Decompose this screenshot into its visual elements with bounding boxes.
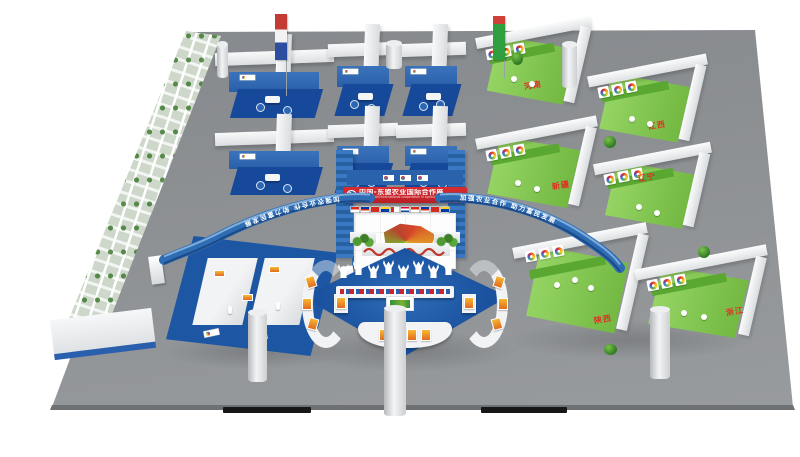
booth-logo-panel — [674, 273, 687, 286]
plant — [434, 232, 458, 248]
product-poster — [336, 297, 346, 309]
flag-icon — [361, 207, 369, 212]
rainbow-logo-icon — [627, 82, 636, 91]
rainbow-logo-icon — [540, 249, 549, 258]
booth-logo-panel — [552, 244, 565, 257]
booth-chair — [511, 76, 517, 82]
hall-pillar — [650, 309, 670, 379]
banner-subtitle: China-ASEAN international cooperation in… — [359, 196, 414, 199]
product-poster — [214, 270, 225, 277]
sponsor-sign — [400, 175, 411, 181]
booth-logo-panel — [524, 250, 537, 263]
flag-icon — [441, 207, 449, 212]
planter-box — [350, 232, 376, 243]
booth-canopy — [214, 49, 333, 66]
booth-logo-panel — [625, 80, 638, 93]
floor-mat — [481, 407, 567, 413]
plant — [350, 232, 374, 248]
hall-pillar — [217, 44, 228, 78]
booth-logo-panel — [660, 276, 673, 289]
product-poster — [242, 294, 253, 301]
booth-chair — [588, 285, 594, 291]
banner-text: 中国-东盟农业国际合作展 China-ASEAN international c… — [359, 189, 464, 202]
booth-sign — [343, 69, 358, 74]
product-poster — [269, 266, 280, 273]
rainbow-logo-icon — [619, 172, 628, 181]
rainbow-logo-icon — [662, 278, 671, 287]
rainbow-logo-icon — [613, 85, 622, 94]
expo-logo-icon — [346, 190, 357, 201]
booth-chair — [701, 314, 707, 320]
flag-icon — [421, 207, 429, 212]
pavilion-header — [347, 170, 463, 185]
flag-icon — [401, 207, 409, 212]
product-poster — [302, 298, 312, 310]
hall-pillar — [386, 43, 402, 69]
plant — [604, 344, 617, 355]
floor-front-edge — [50, 405, 795, 410]
flag-icon — [431, 207, 439, 212]
product-poster — [421, 329, 431, 341]
visitor-figure — [228, 306, 232, 314]
booth-canopy — [214, 129, 333, 146]
booth-table — [426, 93, 441, 100]
booth-sign — [411, 69, 426, 74]
booth-sign — [240, 154, 255, 159]
rainbow-logo-icon — [599, 87, 608, 96]
plant — [512, 52, 523, 65]
booth-chair — [629, 116, 635, 122]
sponsor-sign — [417, 175, 428, 181]
floor-mat — [223, 407, 311, 413]
product-poster — [407, 329, 417, 341]
banner-title: 中国-东盟农业国际合作展 — [359, 189, 464, 196]
province-booth-shaanxi: 陕西 — [516, 226, 644, 348]
product-poster — [498, 298, 508, 310]
plant — [698, 246, 710, 258]
main-banner: 中国-东盟农业国际合作展 China-ASEAN international c… — [343, 187, 467, 203]
green-flag — [493, 16, 505, 60]
exhibition-hall-render: 河南 江西 新疆 — [0, 0, 800, 457]
hall-pillar — [384, 308, 406, 416]
flag-icon — [351, 207, 359, 212]
tricolor-flag — [275, 14, 287, 60]
plant — [604, 136, 616, 148]
booth-logo-panel — [513, 143, 526, 156]
booth-chair — [534, 186, 540, 192]
booth-table — [265, 96, 280, 103]
rainbow-logo-icon — [554, 246, 563, 255]
product-poster — [464, 297, 474, 309]
rainbow-logo-icon — [526, 251, 535, 260]
booth-table — [265, 174, 280, 181]
rainbow-logo-icon — [605, 175, 614, 184]
flag-icon — [411, 207, 419, 212]
sponsor-sign — [383, 175, 394, 181]
booth-chair — [681, 310, 687, 316]
rainbow-logo-icon — [648, 280, 657, 289]
hall-pillar — [248, 312, 267, 382]
display-stand — [334, 294, 348, 313]
booth-logo-panel — [611, 83, 624, 96]
display-stand — [462, 294, 476, 313]
booth-sign — [240, 75, 255, 80]
booth-logo-panel — [597, 86, 610, 99]
flag-icon — [381, 207, 389, 212]
flag-icon — [391, 207, 399, 212]
booth-logo-panel — [646, 279, 659, 292]
planter-box — [434, 232, 460, 243]
booth-table — [358, 93, 373, 100]
rainbow-logo-icon — [675, 275, 684, 284]
asean-flags-row — [351, 205, 459, 213]
flag-icon — [371, 207, 379, 212]
booth-logo-panel — [538, 247, 551, 260]
visitor-figure — [276, 302, 280, 310]
booth-chair — [283, 184, 292, 193]
hall-pillar — [562, 44, 577, 88]
rainbow-logo-icon — [515, 145, 524, 154]
